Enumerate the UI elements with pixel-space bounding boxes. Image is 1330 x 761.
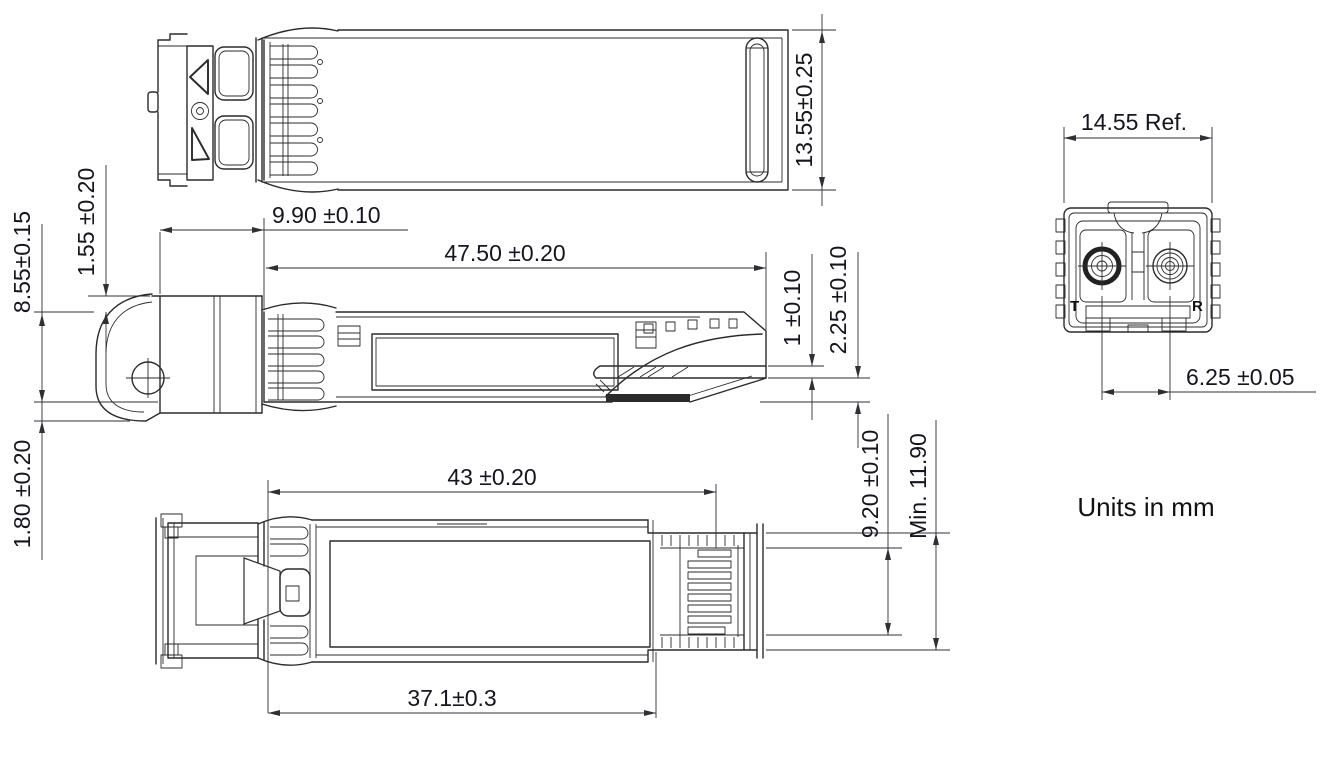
side-view-emi-ribs [268, 314, 324, 400]
pcb-edge [594, 366, 766, 378]
latch-pivot-icon [192, 103, 209, 120]
dim-connector-width: 9.20 ±0.10 [766, 414, 902, 635]
dim-gasket-step-label: 1.55 ±0.20 [73, 168, 99, 277]
top-view-front-pin [148, 92, 158, 112]
dim-nose-length: 9.90 ±0.10 [160, 202, 408, 310]
dim-body-length: 47.50 ±0.20 [266, 240, 766, 330]
dim-cage-length: 43 ±0.20 [268, 464, 716, 713]
dim-front-width: 14.55 Ref. [1064, 109, 1212, 203]
dim-connector-width-label: 9.20 ±0.10 [857, 430, 883, 539]
dim-module-height-label: 13.55±0.25 [791, 53, 817, 168]
side-view [96, 294, 766, 421]
side-view-label-recess [372, 334, 618, 390]
top-view-emi-ribs [270, 44, 323, 176]
dim-pcb-clearance-label: 2.25 ±0.10 [825, 246, 851, 355]
label-tx-port: T [1070, 298, 1079, 315]
latch-arrow-down-icon [192, 128, 209, 160]
rx-port [1146, 242, 1194, 290]
dim-bail-offset-label: 1.80 ±0.20 [9, 440, 35, 549]
dim-body-length-label: 47.50 ±0.20 [444, 240, 565, 266]
latch-arrow-up-icon [190, 60, 208, 94]
drawing-canvas: T R 13.55±0.25 9.90 ±0.10 47.50 ±0.20 8. [0, 0, 1330, 761]
dim-front-width-label: 14.55 Ref. [1081, 109, 1187, 135]
units-note: Units in mm [1077, 492, 1214, 522]
dim-bail-offset: 1.80 ±0.20 [9, 402, 130, 560]
dim-body-height-label: 8.55±0.15 [9, 211, 35, 313]
dim-gasket-step: 1.55 ±0.20 [73, 165, 150, 352]
dim-label-length-label: 37.1±0.3 [407, 685, 496, 711]
dim-module-height: 13.55±0.25 [791, 14, 836, 206]
sfp-mechanical-drawing: T R 13.55±0.25 9.90 ±0.10 47.50 ±0.20 8. [0, 0, 1330, 761]
label-rx-port: R [1192, 298, 1203, 315]
dim-pcb-thickness-label: 1 ±0.10 [779, 270, 805, 347]
bottom-view-label-recess [330, 541, 650, 647]
dim-min-width-label: Min. 11.90 [905, 433, 931, 539]
edge-connector-fingers [688, 550, 731, 634]
tx-port [1078, 242, 1126, 290]
front-view: T R [1056, 202, 1220, 332]
dim-cage-length-label: 43 ±0.20 [447, 464, 536, 490]
delatch-wedge [244, 558, 280, 624]
top-view-rear-gasket [746, 38, 768, 182]
bottom-view [156, 514, 763, 668]
dim-nose-length-label: 9.90 ±0.10 [272, 202, 381, 228]
dim-pcb-thickness: 1 ±0.10 [768, 254, 870, 420]
latch-pocket [280, 569, 310, 616]
dim-port-pitch-label: 6.25 ±0.05 [1186, 364, 1295, 390]
dim-pcb-clearance: 2.25 ±0.10 [760, 246, 870, 448]
dim-port-pitch: 6.25 ±0.05 [1102, 296, 1316, 400]
top-view [148, 28, 788, 192]
